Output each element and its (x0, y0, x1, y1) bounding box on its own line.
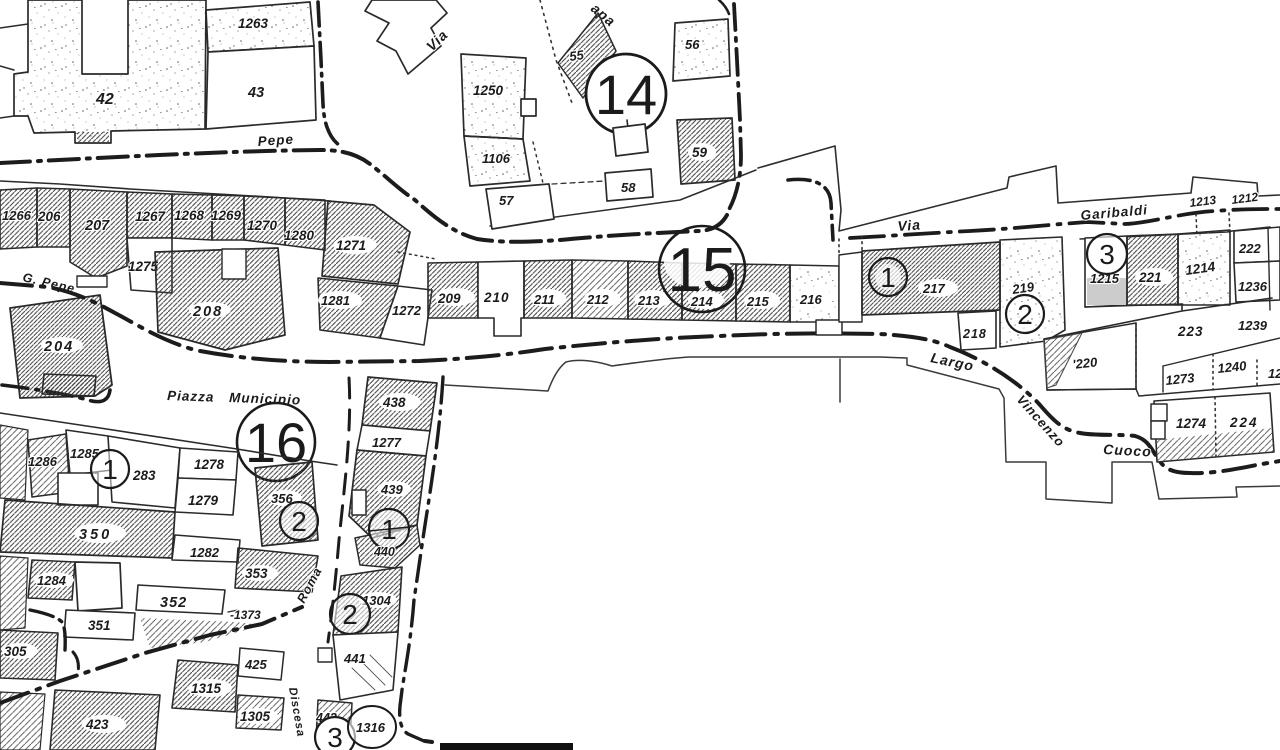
svg-text:15: 15 (668, 236, 737, 305)
svg-text:1305: 1305 (240, 709, 271, 724)
svg-text:1268: 1268 (174, 208, 205, 223)
svg-text:59: 59 (692, 145, 708, 160)
svg-text:1272: 1272 (392, 303, 422, 318)
svg-text:440: 440 (373, 545, 395, 559)
svg-text:Cuoco: Cuoco (1103, 441, 1152, 460)
svg-text:221: 221 (1138, 270, 1162, 285)
svg-text:1269: 1269 (211, 208, 242, 223)
svg-text:1236: 1236 (1238, 279, 1268, 294)
svg-text:Piazza: Piazza (167, 388, 215, 405)
svg-text:2: 2 (342, 599, 358, 630)
svg-text:352: 352 (160, 595, 187, 611)
svg-text:210: 210 (483, 290, 510, 305)
svg-text:439: 439 (380, 482, 403, 497)
svg-text:2: 2 (1017, 299, 1033, 330)
svg-text:353: 353 (245, 566, 268, 581)
svg-text:209: 209 (437, 291, 461, 306)
svg-text:58: 58 (621, 180, 636, 195)
svg-text:212: 212 (586, 292, 609, 307)
svg-text:1277: 1277 (372, 435, 402, 450)
svg-text:441: 441 (343, 651, 366, 666)
svg-text:42: 42 (95, 91, 114, 108)
svg-text:423: 423 (85, 717, 109, 732)
svg-text:216: 216 (799, 292, 822, 307)
svg-text:1271: 1271 (336, 238, 366, 253)
svg-text:204: 204 (43, 339, 74, 355)
svg-text:1280: 1280 (284, 228, 315, 243)
svg-text:1: 1 (102, 454, 118, 485)
svg-text:207: 207 (84, 218, 110, 234)
svg-text:14: 14 (595, 63, 657, 126)
svg-text:1316: 1316 (356, 720, 386, 735)
svg-text:305: 305 (4, 644, 27, 659)
svg-text:1239: 1239 (1238, 318, 1268, 333)
svg-text:208: 208 (192, 304, 223, 320)
svg-text:213: 213 (637, 293, 660, 308)
svg-text:56: 56 (685, 37, 700, 52)
svg-text:1250: 1250 (473, 83, 504, 98)
svg-text:12: 12 (1268, 366, 1280, 381)
svg-text:Via: Via (897, 216, 922, 234)
svg-text:222: 222 (1238, 241, 1261, 256)
svg-text:1281: 1281 (321, 293, 350, 308)
svg-text:224: 224 (1229, 415, 1259, 430)
svg-text:1275: 1275 (128, 259, 159, 274)
svg-text:Pepe: Pepe (257, 131, 294, 148)
svg-text:1240: 1240 (1217, 358, 1248, 376)
svg-text:57: 57 (499, 193, 514, 208)
svg-text:438: 438 (382, 395, 406, 410)
svg-text:1263: 1263 (238, 16, 269, 31)
svg-text:43: 43 (247, 85, 264, 101)
svg-text:1315: 1315 (191, 681, 222, 696)
svg-text:215: 215 (746, 294, 769, 309)
svg-text:2: 2 (291, 506, 307, 537)
svg-text:425: 425 (244, 657, 267, 672)
svg-text:1282: 1282 (190, 545, 220, 560)
svg-text:1: 1 (381, 514, 397, 545)
svg-text:'220: '220 (1072, 354, 1099, 372)
svg-text:1279: 1279 (188, 493, 219, 508)
svg-text:3: 3 (1099, 239, 1115, 270)
svg-text:350: 350 (79, 527, 112, 543)
svg-text:218: 218 (962, 327, 987, 341)
svg-text:3: 3 (327, 722, 343, 750)
svg-text:-1373: -1373 (230, 608, 261, 622)
svg-text:1278: 1278 (194, 457, 225, 472)
svg-text:211: 211 (533, 292, 555, 307)
svg-text:223: 223 (1177, 324, 1204, 339)
svg-text:1106: 1106 (482, 151, 511, 166)
svg-text:1270: 1270 (247, 218, 278, 233)
svg-text:1266: 1266 (2, 208, 32, 223)
svg-text:1286: 1286 (28, 454, 58, 469)
svg-text:217: 217 (922, 281, 945, 296)
svg-text:55: 55 (568, 47, 585, 64)
svg-text:351: 351 (88, 618, 111, 633)
svg-text:1: 1 (880, 262, 896, 293)
svg-text:283: 283 (132, 468, 156, 483)
svg-text:1267: 1267 (135, 209, 167, 224)
svg-text:1273: 1273 (1165, 370, 1196, 388)
svg-text:206: 206 (37, 209, 61, 224)
svg-text:1284: 1284 (37, 573, 67, 588)
svg-text:1274: 1274 (1176, 416, 1207, 431)
